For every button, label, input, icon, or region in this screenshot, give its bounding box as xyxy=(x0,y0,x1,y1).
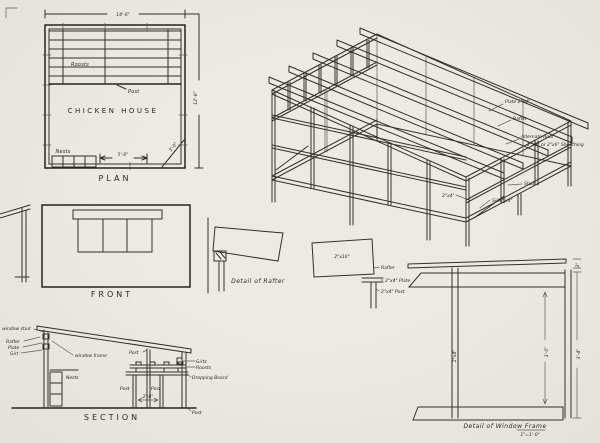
section-nests-label: Nests xyxy=(66,375,79,381)
section-window-stud-label: window stud xyxy=(2,326,30,332)
plan-post-leader xyxy=(117,85,126,89)
plan-caption: PLAN xyxy=(99,174,132,183)
section-window-frame-label: window frame xyxy=(75,353,107,359)
plan-room-label: CHICKEN HOUSE xyxy=(68,107,159,115)
plan-stud-ticks xyxy=(43,23,187,170)
plan-roost-grid-rows xyxy=(49,31,181,76)
iso-braces xyxy=(276,146,504,218)
front-caption: FRONT xyxy=(91,290,133,299)
section-post-wall-label: Post xyxy=(192,410,202,416)
section-roosts xyxy=(130,362,186,372)
section-view: window stud Rafter Plate Girt window fra… xyxy=(2,326,228,422)
section-rafter-label: Rafter xyxy=(6,339,21,345)
section-girts-label: Girts xyxy=(196,359,207,365)
window-height-dim: 3'-4" xyxy=(576,349,582,360)
section-dropping-board-label: Dropping Board xyxy=(192,375,228,381)
window-cap-strip xyxy=(408,259,566,268)
rafter-side-size: 2"x10" xyxy=(334,254,349,260)
drawing-sheet: Roosts Post CHICKEN HOUSE Nests 5'-6" 3'… xyxy=(0,0,600,443)
window-opening-dim: 3'-0" xyxy=(544,347,550,358)
margin-sketch xyxy=(0,205,30,282)
section-posts-dim: 2'-6" xyxy=(143,394,154,400)
rafter-side-plate xyxy=(362,278,383,282)
plan-door-dim: 3'-0" xyxy=(168,141,179,153)
section-left-leaders xyxy=(21,329,44,353)
section-post-inner-label: Post xyxy=(151,386,161,392)
rafter-side-detail: 2"x10" Rafter 2"x4" Plate 2"x4" Post xyxy=(312,239,410,308)
section-post-left-label: Post xyxy=(120,386,130,392)
plan-width-dim: 14'-6" xyxy=(116,12,130,18)
iso-front-girts xyxy=(272,115,466,190)
section-roosts-label: Roosts xyxy=(196,365,212,371)
rafter-side-post-label: 2"x4" Post xyxy=(381,289,405,295)
plan-outer-wall xyxy=(45,25,185,168)
plan-depth-dim-line xyxy=(195,14,203,168)
iso-left-stud xyxy=(325,90,327,152)
window-stud-size: 2"x4" xyxy=(452,350,458,363)
section-post-roof-leader xyxy=(143,350,147,352)
iso-back-studs xyxy=(377,34,523,156)
rafter-side-rafter-label: Rafter xyxy=(381,265,396,271)
window-frame-detail: 3'-0" 3'-4" 3" 2"x4" Detail of Window Fr… xyxy=(408,259,582,438)
rafter-detail: Detail of Rafter xyxy=(208,218,285,293)
iso-roof-label-2: 2"x8" or 2"x6" Sheathing xyxy=(527,142,584,148)
margin-sketch-lines xyxy=(0,205,30,282)
section-roof xyxy=(37,326,191,353)
iso-sill-label: Sill 2"x4" xyxy=(492,198,513,204)
section-girt-label: Girt xyxy=(10,351,19,357)
plan-nests-label: Nests xyxy=(56,149,71,155)
window-cap-dim: 3" xyxy=(575,263,581,268)
blueprint-svg: Roosts Post CHICKEN HOUSE Nests 5'-6" 3'… xyxy=(0,0,600,443)
front-windows xyxy=(78,219,152,252)
window-sill xyxy=(413,407,563,420)
front-view: FRONT xyxy=(42,205,190,299)
rafter-detail-caption: Detail of Rafter xyxy=(231,278,285,285)
section-caption: SECTION xyxy=(84,413,140,422)
iso-roof-label-1: Alternate Roof xyxy=(520,134,555,140)
section-window-frame-leader xyxy=(52,341,73,355)
rafter-detail-stud xyxy=(219,261,224,291)
iso-girt-label: 2"x4" xyxy=(442,193,455,199)
rafter-side-post xyxy=(371,282,376,308)
plan-depth-dim: 12'-6" xyxy=(193,91,199,105)
window-detail-caption: Detail of Window Frame xyxy=(463,423,546,430)
iso-stud-label: Stud xyxy=(524,181,534,187)
page-corner-mark xyxy=(6,8,17,18)
window-header xyxy=(409,273,565,287)
front-header-band xyxy=(73,210,162,219)
plan-nest-boxes xyxy=(52,156,96,167)
window-left-stud xyxy=(452,268,458,418)
section-plate-label: Plate xyxy=(8,345,19,351)
section-left-wall xyxy=(44,330,48,408)
iso-plates xyxy=(272,34,571,181)
plan-post-label: Post xyxy=(128,89,140,95)
front-outline xyxy=(42,205,190,287)
framing-isometric-view: Plate 2"x4" Rafter Alternate Roof 2"x8" … xyxy=(269,28,588,246)
section-dropping-board xyxy=(126,372,188,375)
plan-nests-dim: 5'-6" xyxy=(118,152,129,158)
rafter-side-plate-label: 2"x4" Plate xyxy=(385,278,410,284)
iso-rafter-label: Rafter xyxy=(513,116,528,122)
iso-plate-label: Plate 2"x4" xyxy=(505,99,530,105)
window-detail-scale: 1"=1'-0" xyxy=(520,432,539,438)
section-right-wall xyxy=(182,352,186,408)
window-height-dim-line xyxy=(573,272,581,418)
plan-view: Roosts Post CHICKEN HOUSE Nests 5'-6" 3'… xyxy=(43,10,203,183)
window-right-jamb xyxy=(565,270,571,418)
iso-rafter-4 xyxy=(337,40,572,143)
section-post-roof-label: Post xyxy=(129,350,139,356)
plan-roosts-label: Roosts xyxy=(71,62,89,68)
